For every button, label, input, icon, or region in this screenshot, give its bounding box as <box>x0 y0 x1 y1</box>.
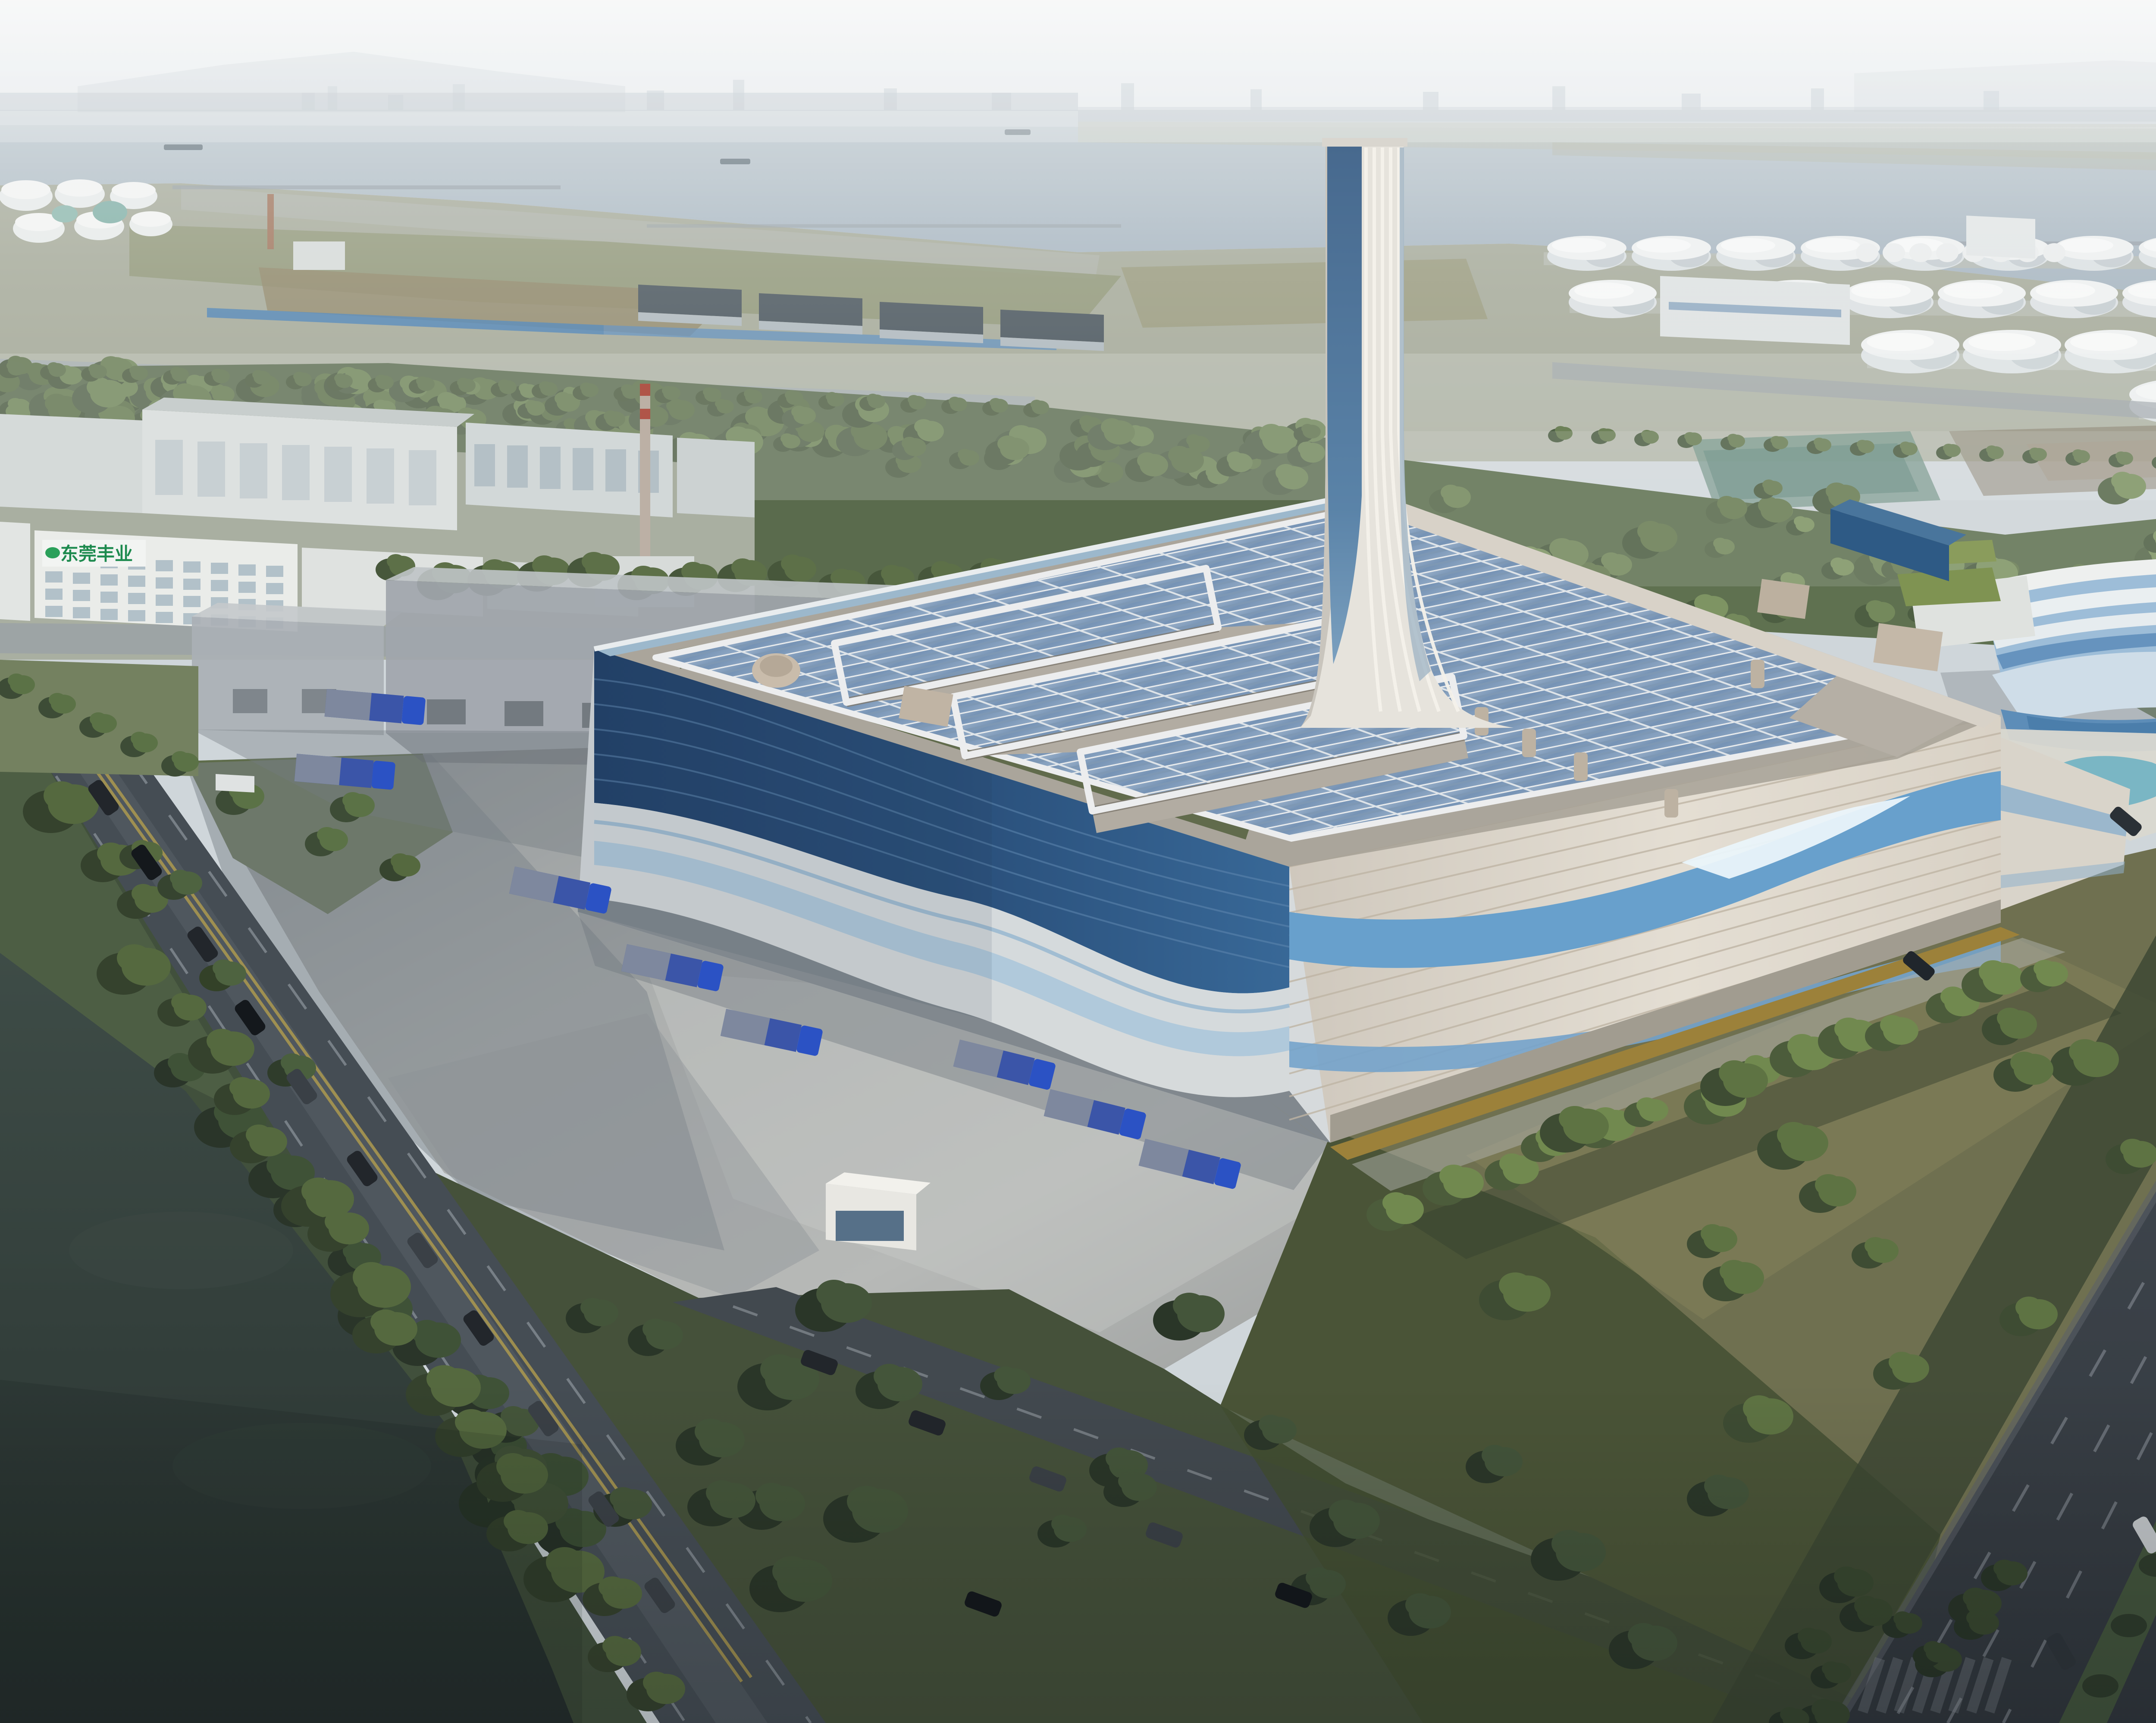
svg-text:东莞丰业: 东莞丰业 <box>60 544 133 564</box>
